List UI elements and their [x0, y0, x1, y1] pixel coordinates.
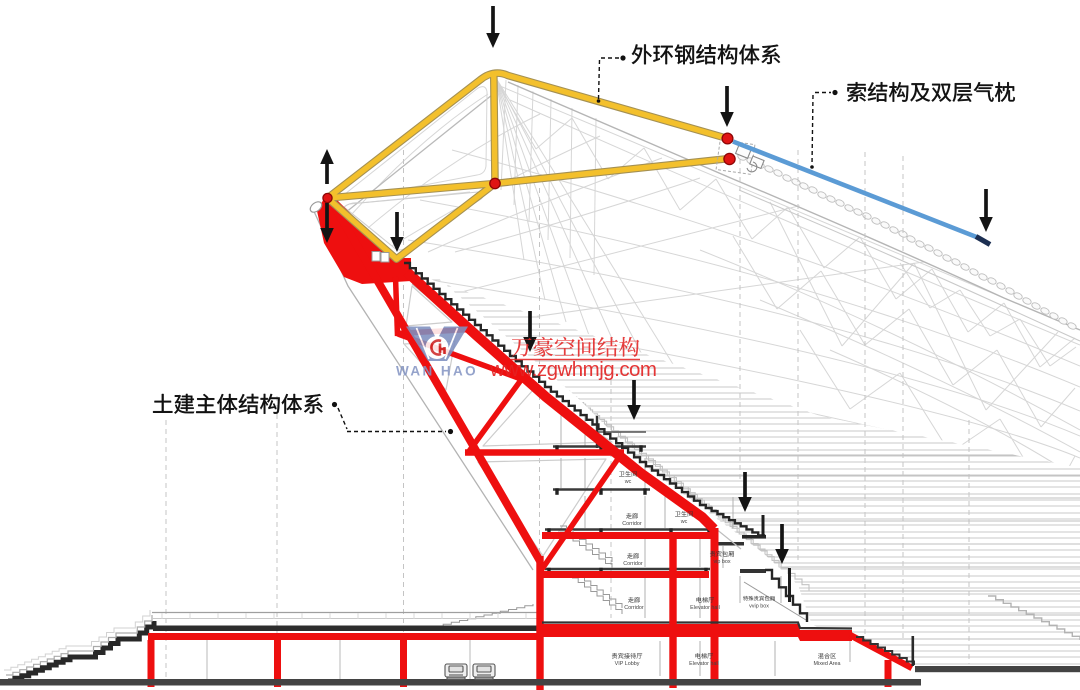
svg-text:Corridor: Corridor — [622, 521, 642, 527]
svg-text:Corridor: Corridor — [623, 561, 643, 567]
svg-text:VIP Lobby: VIP Lobby — [615, 661, 640, 667]
svg-text:www.zgwhmjg.com: www.zgwhmjg.com — [489, 358, 657, 381]
svg-text:vip box: vip box — [713, 559, 730, 565]
svg-text:Elevator hall: Elevator hall — [690, 605, 720, 611]
svg-text:WAN HAO: WAN HAO — [396, 364, 478, 379]
svg-text:wc: wc — [624, 479, 632, 485]
svg-text:Mixed Area: Mixed Area — [814, 661, 841, 667]
svg-text:wc: wc — [680, 519, 688, 525]
svg-text:Elevator hall: Elevator hall — [689, 661, 719, 667]
svg-text:Corridor: Corridor — [624, 605, 644, 611]
svg-text:vvip box: vvip box — [749, 603, 769, 609]
